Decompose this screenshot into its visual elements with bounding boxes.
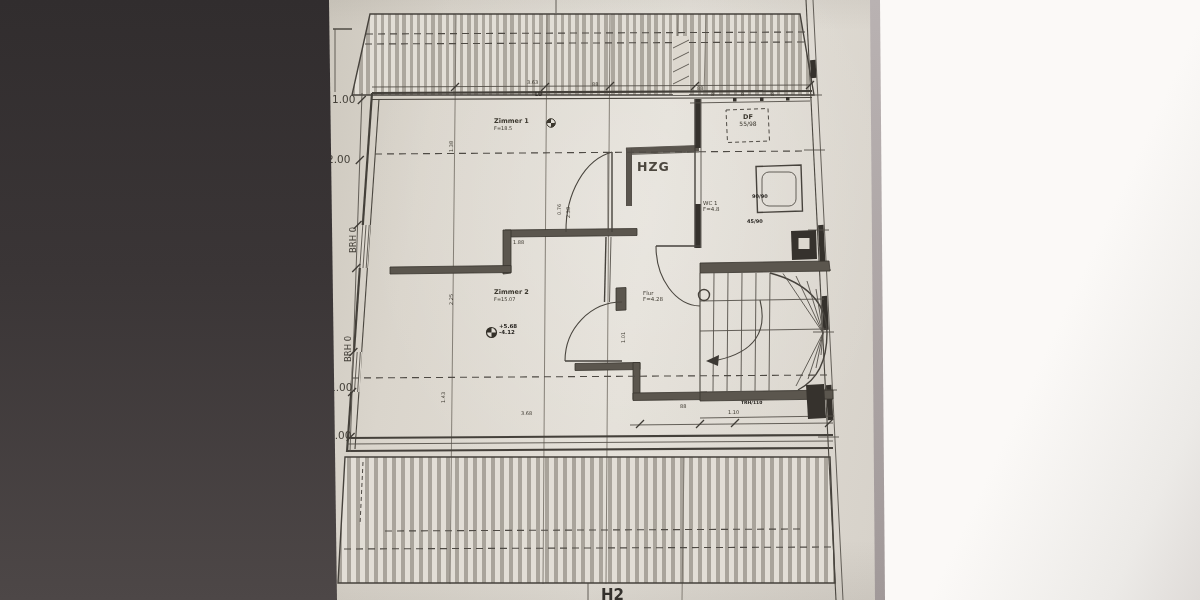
floor-plan-photo: Zimmer 1 F=18.5 Zimmer 2 F=15.07 +5.68 -… xyxy=(0,0,1200,600)
room-area: F=15.07 xyxy=(494,296,515,302)
dimension-label-brh: BRH 0 xyxy=(344,336,354,362)
tiny-dim: 88 xyxy=(592,82,598,88)
room-area: F=4.28 xyxy=(643,296,663,302)
room-label-zimmer1: Zimmer 1 F=18.5 xyxy=(494,118,529,133)
photo-light-margin xyxy=(878,0,1200,600)
staircase xyxy=(699,273,828,392)
tiny-dim: 2.38 xyxy=(566,207,572,218)
dimension-label-brh: BRH 0 xyxy=(349,227,359,253)
room-name: WC 1 xyxy=(703,200,718,206)
sheet-label: H2 xyxy=(601,587,624,600)
vent-label: LÜ xyxy=(535,92,542,98)
tiny-dim: 1.38 xyxy=(449,141,455,152)
tiny-dim: 3.63 xyxy=(527,80,538,86)
room-name: Zimmer 2 xyxy=(494,288,529,296)
tiny-dim: 1.01 xyxy=(621,332,627,343)
doors xyxy=(565,152,700,361)
room-label-wc: WC 1 F=4.8 xyxy=(703,200,720,212)
shower-tray-inner xyxy=(762,172,796,206)
interior-walls xyxy=(390,99,834,419)
stair-direction-arrow-icon xyxy=(706,355,719,366)
tiny-dim: 1.10 xyxy=(728,410,739,416)
level-annotation: +5.68 -4.12 xyxy=(499,323,517,335)
tiny-dim: 1.88 xyxy=(513,240,524,246)
tiny-dim: 88 xyxy=(697,86,703,92)
room-label-zimmer2: Zimmer 2 F=15.07 xyxy=(494,289,529,304)
tiny-dim: 2.25 xyxy=(449,294,455,305)
room-area: F=4.8 xyxy=(703,206,720,212)
tiny-dim: 8 xyxy=(711,92,714,98)
tiny-dim: 0.76 xyxy=(557,204,563,215)
level-datum-icon xyxy=(545,117,557,129)
level-lower: -4.12 xyxy=(499,329,515,335)
roof-window-label: DF 55/98 xyxy=(729,114,767,129)
dimension-label: 1.00 xyxy=(332,94,355,106)
chimney-hatch xyxy=(673,36,689,95)
level-upper: +5.68 xyxy=(499,323,517,329)
room-label-flur: Flur F=4.28 xyxy=(643,290,663,302)
tiny-dim: 8 xyxy=(771,92,774,98)
section-lines xyxy=(450,0,706,600)
room-area: F=18.5 xyxy=(494,125,512,131)
fixture-label: 90/90 xyxy=(752,194,768,200)
tiny-dim: 3.68 xyxy=(521,411,532,417)
fixture-label: 45/90 xyxy=(747,219,763,225)
tiny-dim: 1.43 xyxy=(441,392,447,403)
roof-window-size: 55/98 xyxy=(739,120,756,127)
tiny-dim: 8 xyxy=(741,92,744,98)
level-datum-icon xyxy=(485,326,498,339)
room-label-hzg: HZG xyxy=(637,160,670,174)
stair-note: TRH/110 xyxy=(741,400,762,405)
tiny-dim: 88 xyxy=(680,404,686,410)
photo-dark-margin xyxy=(0,0,340,600)
room-name: Flur xyxy=(643,290,653,296)
wc-fixtures xyxy=(756,165,817,260)
room-name: Zimmer 1 xyxy=(494,117,529,125)
